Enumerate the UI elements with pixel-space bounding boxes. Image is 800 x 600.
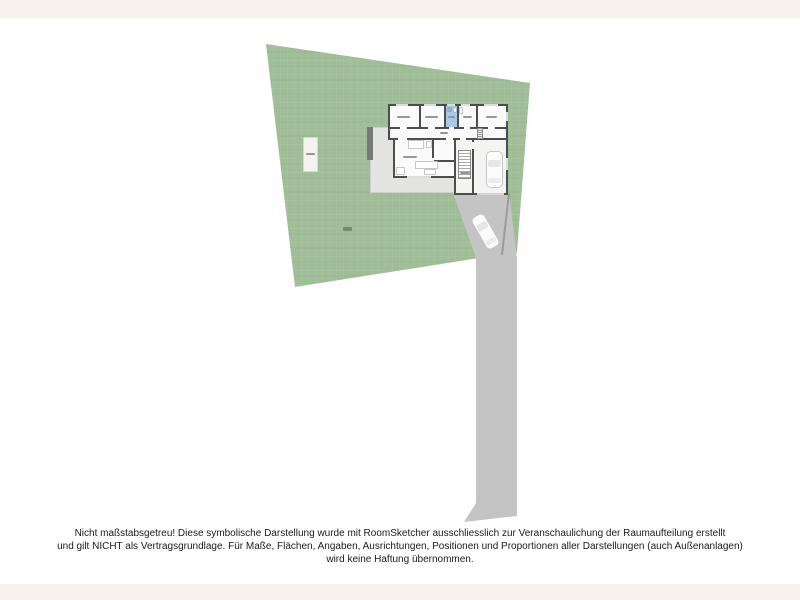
roomsketcher-site-plan-page: Nicht maßstabsgetreu! Diese symbolische …: [0, 0, 800, 600]
garden-label-mark: [343, 227, 352, 231]
door-opening: [428, 127, 435, 129]
disclaimer-line-2: und gilt NICHT als Vertragsgrundlage. Fü…: [0, 540, 800, 553]
car-rear-window: [488, 178, 501, 183]
wc-fixture: [459, 107, 463, 114]
door-opening: [449, 127, 454, 129]
room-label-mark: [448, 116, 455, 118]
wall-segment: [454, 140, 456, 195]
wall-segment: [388, 104, 390, 140]
window-opening: [461, 104, 470, 106]
furniture-piece: [396, 167, 405, 175]
parking-pad: [303, 137, 318, 172]
disclaimer-line-3: wird keine Haftung übernommen.: [0, 553, 800, 566]
car-windshield: [488, 160, 501, 167]
door-opening: [464, 127, 470, 129]
wall-segment: [432, 140, 434, 158]
room-label-mark: [425, 116, 438, 118]
window-opening: [447, 104, 455, 106]
window-opening: [396, 104, 408, 106]
wall-segment: [444, 106, 446, 127]
dining-table: [415, 161, 438, 169]
wall-segment: [476, 106, 478, 127]
door-opening: [472, 142, 474, 149]
furniture-piece: [424, 169, 436, 175]
disclaimer-text: Nicht maßstabsgetreu! Diese symbolische …: [0, 527, 800, 566]
room-label-mark: [463, 116, 472, 118]
room-label-mark: [440, 132, 448, 134]
window-opening: [484, 104, 498, 106]
car-windshield: [476, 221, 489, 233]
patio-door-opening: [407, 176, 431, 178]
window-opening: [506, 112, 508, 121]
door-opening: [446, 138, 453, 140]
garage-door-opening: [477, 193, 504, 195]
bathroom-sink-fixture: [447, 107, 452, 112]
door-opening: [460, 138, 466, 140]
garage-car: [486, 151, 503, 188]
window-opening: [506, 158, 508, 170]
parking-pad-label-mark: [306, 153, 315, 155]
staircase: [458, 150, 471, 179]
wall-segment: [393, 140, 395, 178]
wall-segment: [419, 106, 421, 127]
door-opening: [400, 127, 407, 129]
room-label-mark: [486, 116, 497, 118]
door-opening: [488, 127, 495, 129]
window-opening: [424, 104, 436, 106]
disclaimer-line-1: Nicht maßstabsgetreu! Diese symbolische …: [0, 527, 800, 540]
door-opening: [398, 138, 407, 140]
room-label-mark: [460, 172, 470, 174]
kitchen-appliance: [426, 141, 432, 148]
corridor-stairs: [477, 128, 483, 139]
kitchen-counter: [408, 140, 424, 149]
room-label-mark: [397, 116, 410, 118]
bathroom-toilet-fixture: [453, 107, 457, 113]
retaining-wall: [367, 127, 373, 160]
car-rear-window: [485, 236, 497, 246]
room-label-mark: [403, 156, 417, 158]
